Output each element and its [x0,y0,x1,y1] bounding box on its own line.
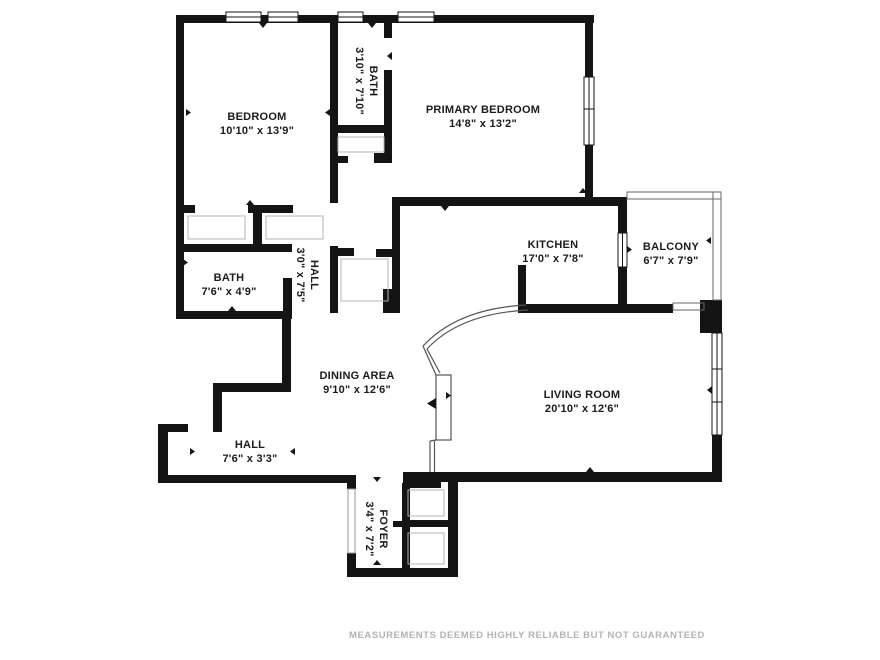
room-name: DINING AREA [319,369,394,383]
room-label-foyer: FOYER 3'4" x 7'2" [362,501,390,556]
balcony-rail-right [713,192,721,300]
room-name: HALL [222,438,277,452]
room-dims: 9'10" x 12'6" [319,383,394,397]
room-dims: 7'6" x 4'9" [201,285,256,299]
room-label-living-room: LIVING ROOM 20'10" x 12'6" [544,388,621,416]
curved-partition [423,305,528,472]
room-label-bath-upper: BATH 3'10" x 7'10" [352,47,380,115]
room-label-bedroom: BEDROOM 10'10" x 13'9" [220,110,294,138]
room-dims: 17'0" x 7'8" [522,252,583,266]
door-arrow [427,398,436,409]
room-label-bath: BATH 7'6" x 4'9" [201,271,256,299]
room-dims: 3'4" x 7'2" [362,501,376,556]
room-dims: 3'0" x 7'5" [293,247,307,302]
room-name: BALCONY [643,240,699,254]
room-name: KITCHEN [522,238,583,252]
floor-plan: BEDROOM 10'10" x 13'9" BATH 3'10" x 7'10… [0,0,880,660]
room-name: BATH [201,271,256,285]
room-name: HALL [307,247,321,302]
room-dims: 7'6" x 3'3" [222,452,277,466]
room-label-balcony: BALCONY 6'7" x 7'9" [643,240,699,268]
room-name: LIVING ROOM [544,388,621,402]
room-dims: 6'7" x 7'9" [643,254,699,268]
room-name: FOYER [376,501,390,556]
room-dims: 20'10" x 12'6" [544,402,621,416]
foyer-opening [348,489,355,553]
room-label-hall-upper: HALL 3'0" x 7'5" [293,247,321,302]
room-name: BATH [366,47,380,115]
room-name: PRIMARY BEDROOM [426,103,540,117]
room-label-kitchen: KITCHEN 17'0" x 7'8" [522,238,583,266]
windows [226,12,722,435]
room-dims: 10'10" x 13'9" [220,124,294,138]
floor-plan-drawing [0,0,880,660]
balcony-rail-top [627,192,721,199]
room-label-primary-bedroom: PRIMARY BEDROOM 14'8" x 13'2" [426,103,540,131]
balcony-sliding-door [673,303,704,310]
room-name: BEDROOM [220,110,294,124]
disclaimer-text: MEASUREMENTS DEEMED HIGHLY RELIABLE BUT … [349,630,705,641]
room-dims: 14'8" x 13'2" [426,117,540,131]
room-dims: 3'10" x 7'10" [352,47,366,115]
room-label-hall-lower: HALL 7'6" x 3'3" [222,438,277,466]
room-label-dining-area: DINING AREA 9'10" x 12'6" [319,369,394,397]
